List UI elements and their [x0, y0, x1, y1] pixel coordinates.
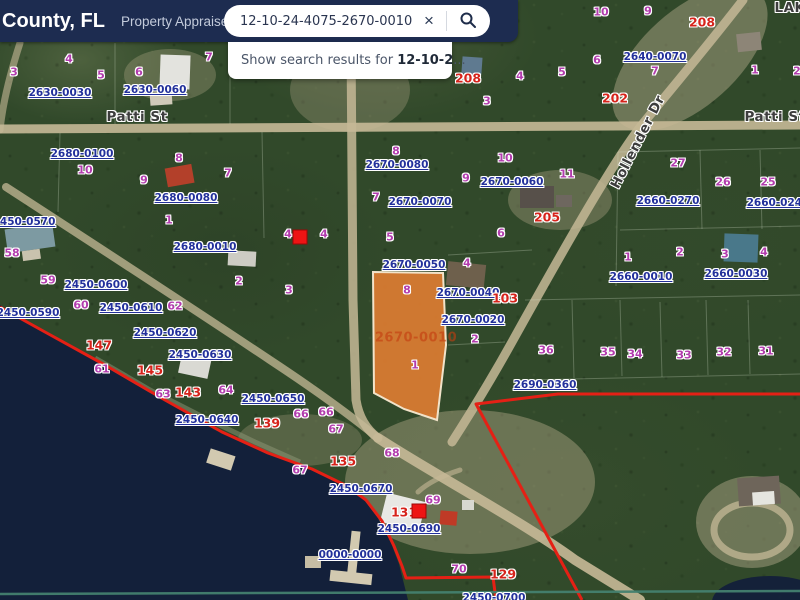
parcel-search-box: × [224, 5, 490, 37]
building [446, 261, 486, 289]
building-red-roof [439, 510, 457, 525]
pond [712, 576, 800, 600]
app-header: County, FL Property Appraiser × [0, 0, 518, 42]
building [159, 54, 190, 89]
property-appraiser-app: 2670-0010 2630-00302630-00602680-0100268… [0, 0, 800, 600]
building-teal-roof [724, 233, 759, 262]
map-vector-layer [0, 0, 800, 600]
search-input[interactable] [240, 14, 416, 29]
highlighted-parcel[interactable] [373, 272, 446, 420]
app-subtitle: Property Appraiser [121, 14, 233, 29]
building [462, 500, 474, 510]
road-patti-st [0, 125, 800, 129]
building [228, 250, 257, 266]
building [150, 91, 173, 106]
search-icon [459, 11, 477, 32]
building [736, 32, 762, 52]
building [520, 186, 554, 208]
building [556, 195, 572, 207]
county-title: County, FL [2, 10, 105, 33]
building-red-roof [165, 164, 195, 187]
search-button[interactable] [451, 8, 485, 34]
building [752, 491, 775, 506]
road-left-edge [0, 43, 20, 130]
building-teal-roof [5, 223, 56, 253]
building [178, 351, 212, 379]
suggestion-text: Show search results for 12-10-2... [241, 53, 466, 68]
search-suggestion-item[interactable]: Show search results for 12-10-2... [228, 42, 452, 79]
aerial-map[interactable]: 2670-0010 2630-00302630-00602680-0100268… [0, 0, 800, 600]
boat-lift [305, 556, 321, 568]
divider [446, 11, 447, 31]
clear-search-button[interactable]: × [416, 8, 442, 34]
